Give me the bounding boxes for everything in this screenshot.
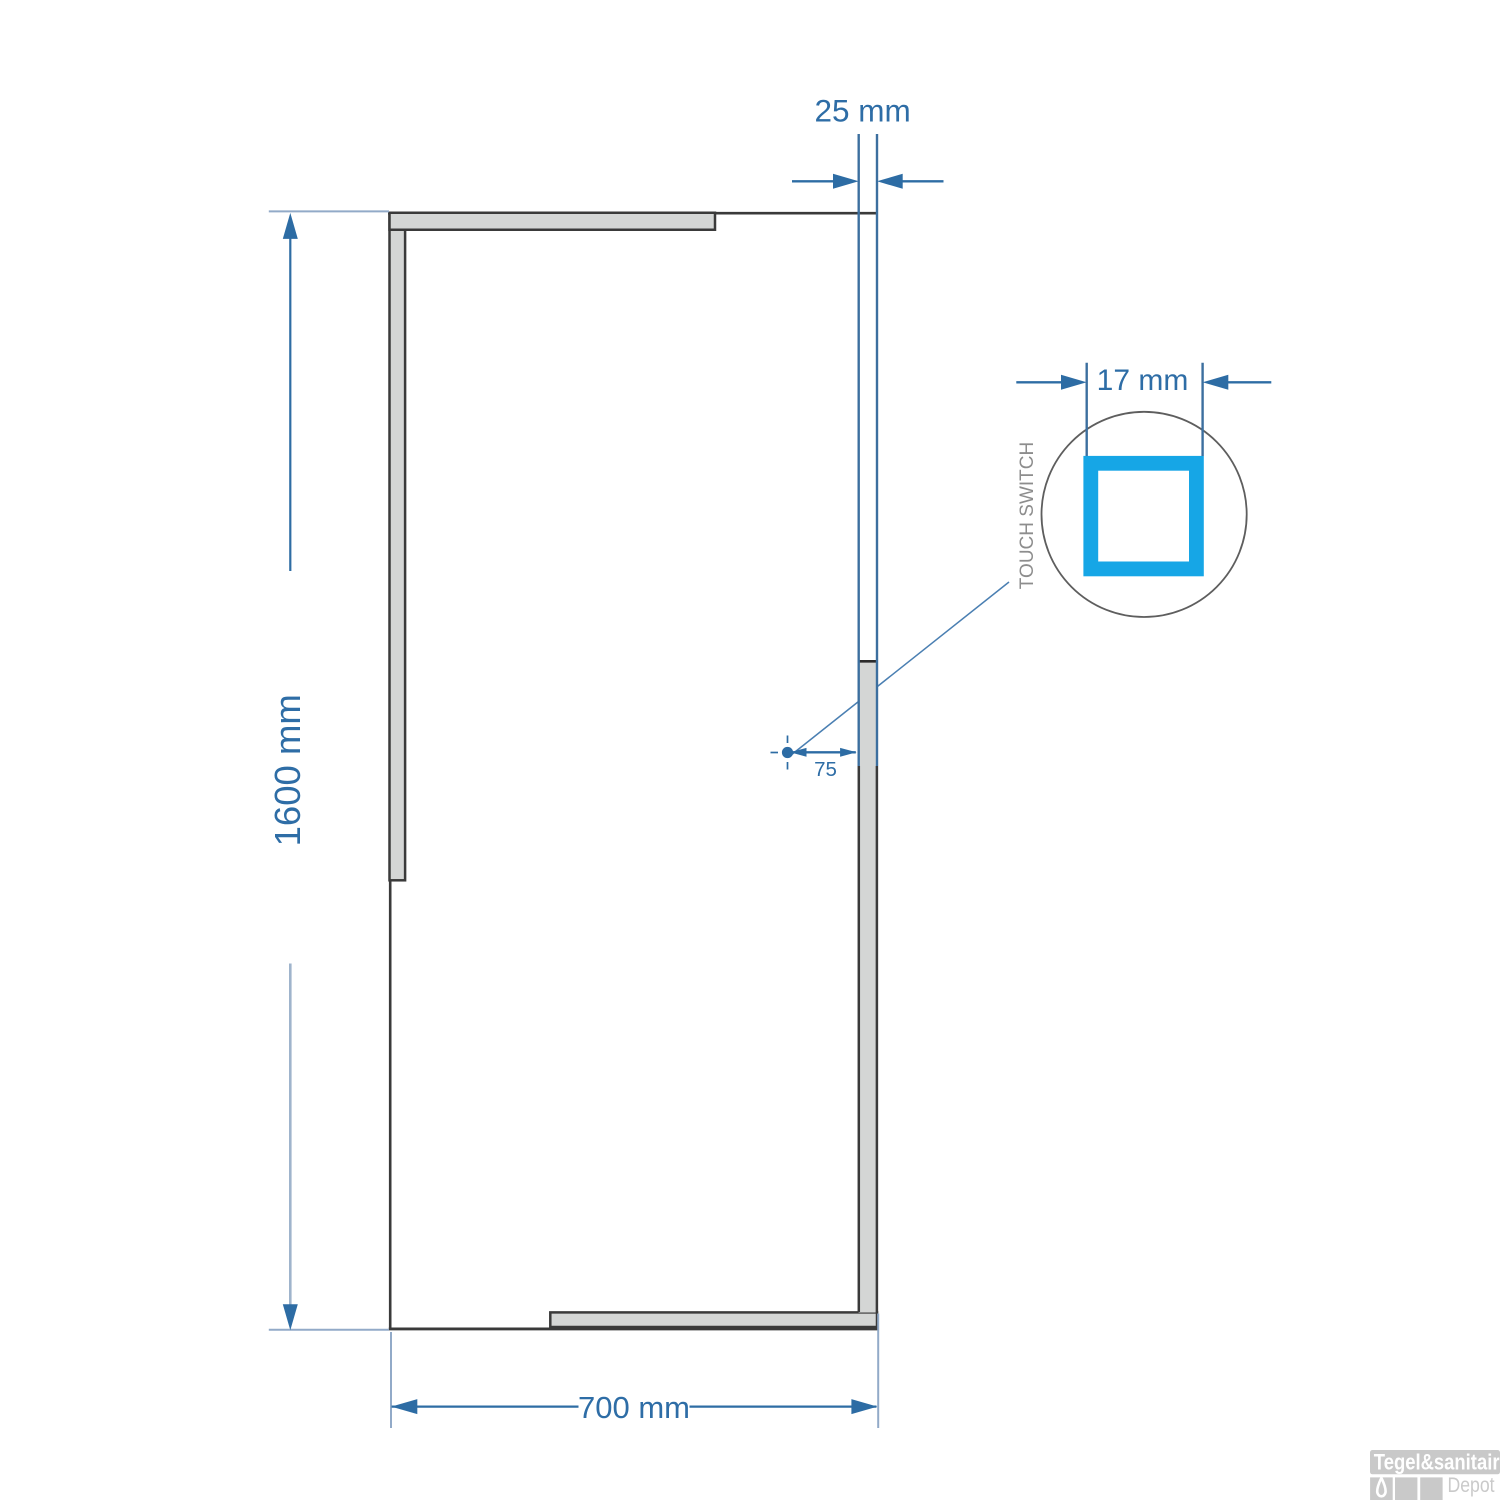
svg-text:75: 75: [814, 758, 837, 781]
svg-text:Depot: Depot: [1448, 1473, 1496, 1497]
svg-text:TOUCH SWITCH: TOUCH SWITCH: [1017, 442, 1038, 589]
svg-text:Tegel&sanitair: Tegel&sanitair: [1374, 1450, 1500, 1475]
svg-text:1600 mm: 1600 mm: [267, 694, 308, 846]
svg-text:700 mm: 700 mm: [578, 1390, 690, 1425]
svg-text:17 mm: 17 mm: [1097, 364, 1189, 397]
svg-text:25 mm: 25 mm: [814, 93, 910, 129]
